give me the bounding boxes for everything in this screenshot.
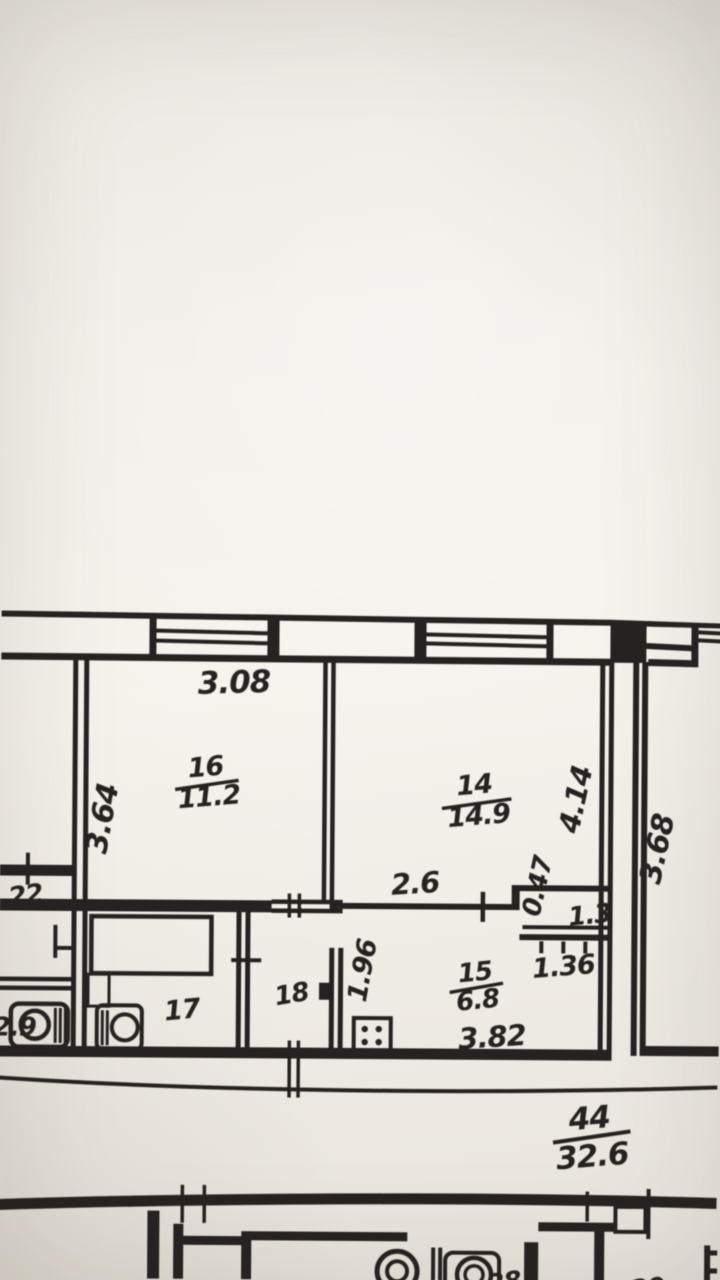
toilet-room17	[97, 1005, 142, 1049]
door-mark	[55, 946, 71, 950]
window-jamb	[267, 617, 274, 661]
sink-room17	[88, 974, 109, 1006]
toilet-bowl	[377, 1251, 417, 1280]
window-jamb	[691, 624, 698, 663]
apartment-total-area: 32.6	[555, 1136, 631, 1178]
dim-room15-depth: 1.96	[342, 937, 384, 1004]
window-glazing-line	[699, 630, 720, 635]
wall-segment	[338, 948, 344, 1052]
door-mark	[481, 892, 486, 922]
dim-neighbor-right: 3.68	[633, 811, 682, 887]
sink-bowl-inner	[465, 1266, 483, 1280]
wall-segment	[524, 1242, 538, 1280]
party-wall-tee	[610, 621, 646, 663]
site-boundary-line	[0, 1077, 717, 1093]
wall-segment	[241, 1231, 251, 1279]
wall-segment	[0, 985, 71, 990]
wall-segment	[431, 1248, 435, 1280]
bathtub	[91, 916, 211, 974]
wall-segment	[272, 908, 343, 913]
floorplan-photo: 3.08 3.64 16 11.2 14 14.9 4.14 2.6 0.47 …	[0, 0, 720, 1280]
wall-segment	[0, 976, 71, 981]
dim-niche-width: 1.3	[567, 899, 613, 933]
window-jamb	[149, 616, 156, 660]
neighbor-left-dim: 2.9	[0, 1012, 36, 1042]
window-glazing-line	[426, 632, 547, 639]
wall-segment	[538, 1222, 613, 1232]
stove-burner	[361, 1039, 367, 1045]
dim-duct-width: 1.36	[531, 949, 596, 985]
toilet-cistern-line	[106, 1010, 109, 1045]
wall-segment	[330, 903, 514, 910]
flue-mark	[180, 1185, 184, 1223]
window-glazing-line	[156, 629, 268, 636]
wall-segment	[438, 1248, 442, 1280]
ink-layer: 3.08 3.64 16 11.2 14 14.9 4.14 2.6 0.47 …	[0, 610, 720, 1280]
flue-mark	[298, 894, 302, 918]
neighbor-right-top-wall	[648, 659, 698, 667]
room14-number: 14	[455, 768, 493, 802]
wall-segment	[594, 1232, 604, 1280]
wall-segment	[245, 912, 251, 1048]
wall-segment	[183, 1236, 241, 1245]
wall-segment	[1, 652, 613, 665]
toilet-bowl	[112, 1014, 138, 1040]
facade-wall-south	[0, 1196, 717, 1210]
room18-number: 18	[272, 977, 312, 1012]
window-glazing-line	[698, 638, 720, 643]
flue-mark	[585, 1192, 589, 1222]
wall-segment	[53, 925, 57, 958]
hatch-mark	[539, 941, 543, 953]
window-glazing-line	[156, 639, 268, 646]
toilet-neighbor-bottom	[377, 1251, 417, 1280]
room16-area: 11.2	[176, 779, 241, 815]
wall-segment	[251, 1231, 407, 1241]
room16-number-area: 16 11.2	[172, 749, 241, 815]
room16-number: 16	[187, 751, 225, 785]
dim-niche-depth: 0.47	[517, 852, 560, 919]
door-mark	[231, 958, 261, 962]
window-jamb	[419, 619, 426, 663]
room14-area: 14.9	[446, 798, 511, 834]
toilet-cistern-line	[54, 1008, 57, 1043]
dim-room15-width: 3.82	[457, 1018, 527, 1056]
bottom-neighbor-flat	[0, 1183, 718, 1280]
toilet-cistern-line	[101, 1010, 104, 1045]
toilet-cistern-line	[64, 1008, 67, 1043]
dim-room14-opening: 2.6	[390, 865, 441, 902]
floorplan-drawing: 3.08 3.64 16 11.2 14 14.9 4.14 2.6 0.47 …	[0, 0, 720, 1280]
wall-segment	[147, 1211, 159, 1279]
room17-number: 17	[163, 993, 203, 1027]
dim-room16-width: 3.08	[197, 664, 271, 702]
stove-burner	[362, 1026, 368, 1032]
wall-segment	[598, 663, 606, 1055]
wall-segment	[322, 660, 328, 903]
window-jamb	[546, 621, 553, 664]
window-neighbor-right	[646, 624, 720, 664]
toilet-cistern-line	[59, 1008, 62, 1043]
fixtures	[11, 916, 392, 1053]
wall-segment	[236, 912, 242, 1048]
wall-segment	[646, 1046, 719, 1057]
wall-segment	[274, 619, 279, 660]
apartment-number-area: 44 32.6	[550, 1097, 634, 1177]
dim-room14-depth: 4.14	[552, 763, 600, 837]
flue-mark	[202, 1185, 206, 1223]
wall-segment	[414, 620, 419, 662]
room15-number-area: 15 6.8	[447, 955, 506, 1018]
door-mark	[704, 1268, 717, 1273]
window-glazing-line	[426, 641, 547, 648]
neighbor-left-room-number: 22	[7, 879, 45, 913]
wall-segment	[330, 660, 336, 903]
vent-block	[319, 983, 333, 1000]
stove-burner	[375, 1039, 381, 1045]
flue-mark	[288, 893, 292, 917]
wall-segment	[71, 657, 79, 1049]
neighbor-bottom-label-b: 20	[629, 1272, 667, 1280]
room14-number-area: 14 14.9	[439, 767, 514, 834]
facade-wall-north	[1, 610, 720, 667]
stove-body	[354, 1018, 391, 1052]
stove-room15	[354, 1018, 391, 1052]
vent-box	[615, 1207, 645, 1232]
toilet-bowl-inner	[387, 1261, 407, 1280]
wall-segment	[173, 1224, 183, 1279]
door-mark	[704, 1250, 717, 1255]
wall-segment	[646, 643, 693, 651]
wall-segment	[519, 934, 607, 941]
stove-burner	[376, 1026, 382, 1032]
wall-segment	[0, 864, 73, 876]
wall-segment	[607, 663, 615, 1055]
apartment-number: 44	[566, 1099, 611, 1138]
room15-area: 6.8	[455, 984, 502, 1018]
